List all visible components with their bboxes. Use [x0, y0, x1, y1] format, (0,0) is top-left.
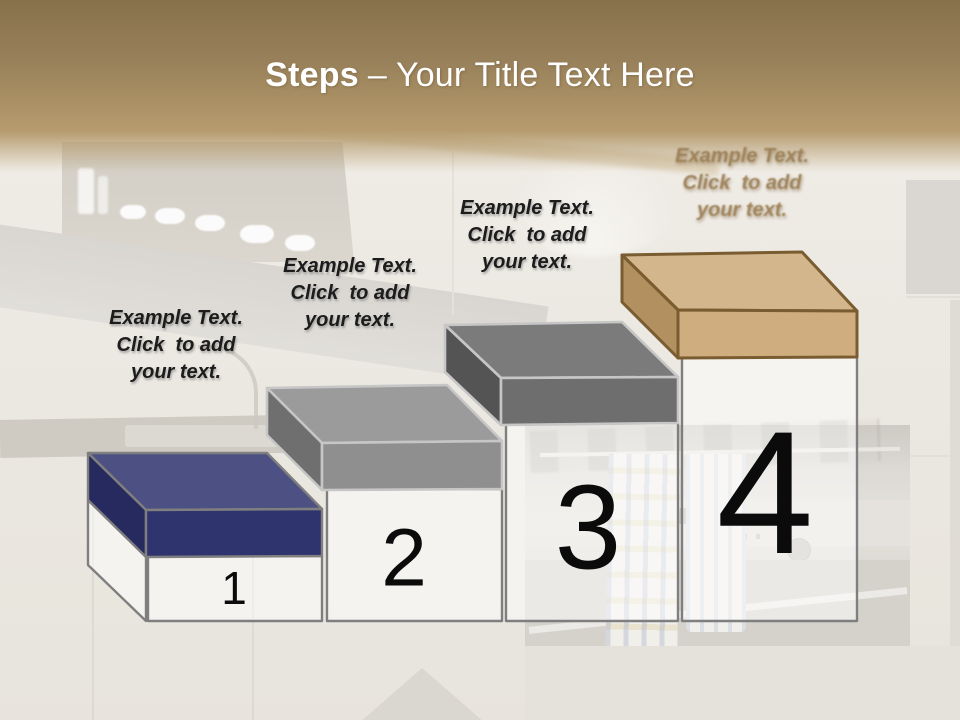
- label-line: your text.: [427, 249, 627, 276]
- label-line: Click to add: [427, 222, 627, 249]
- label-line: Click to add: [76, 332, 276, 359]
- label-line: Example Text.: [250, 253, 450, 280]
- step-1-number[interactable]: 1: [221, 565, 247, 611]
- title-separator: –: [368, 56, 387, 94]
- label-line: Click to add: [642, 170, 842, 197]
- step-3-label[interactable]: Example Text. Click to add your text.: [427, 195, 627, 276]
- step-2-box-front-face[interactable]: [322, 441, 502, 490]
- label-line: Click to add: [250, 280, 450, 307]
- step-1-label[interactable]: Example Text. Click to add your text.: [76, 305, 276, 386]
- label-line: your text.: [76, 359, 276, 386]
- step-4-number[interactable]: 4: [716, 406, 813, 581]
- slide: Steps–Your Title Text Here Example Text.…: [0, 0, 960, 720]
- step-2-number[interactable]: 2: [381, 517, 427, 599]
- label-line: Example Text.: [76, 305, 276, 332]
- label-line: your text.: [642, 197, 842, 224]
- title-prefix: Steps: [265, 56, 359, 94]
- slide-title[interactable]: Steps–Your Title Text Here: [0, 56, 960, 94]
- step-4-label[interactable]: Example Text. Click to add your text.: [642, 143, 842, 224]
- step-1-box-front-face[interactable]: [146, 509, 322, 557]
- step-3-number[interactable]: 3: [555, 468, 622, 588]
- step-3-box-front-face[interactable]: [501, 377, 678, 425]
- step-4-box-front-face[interactable]: [678, 310, 857, 358]
- step-2-label[interactable]: Example Text. Click to add your text.: [250, 253, 450, 334]
- title-text: Your Title Text Here: [396, 56, 695, 94]
- label-line: Example Text.: [427, 195, 627, 222]
- label-line: Example Text.: [642, 143, 842, 170]
- label-line: your text.: [250, 307, 450, 334]
